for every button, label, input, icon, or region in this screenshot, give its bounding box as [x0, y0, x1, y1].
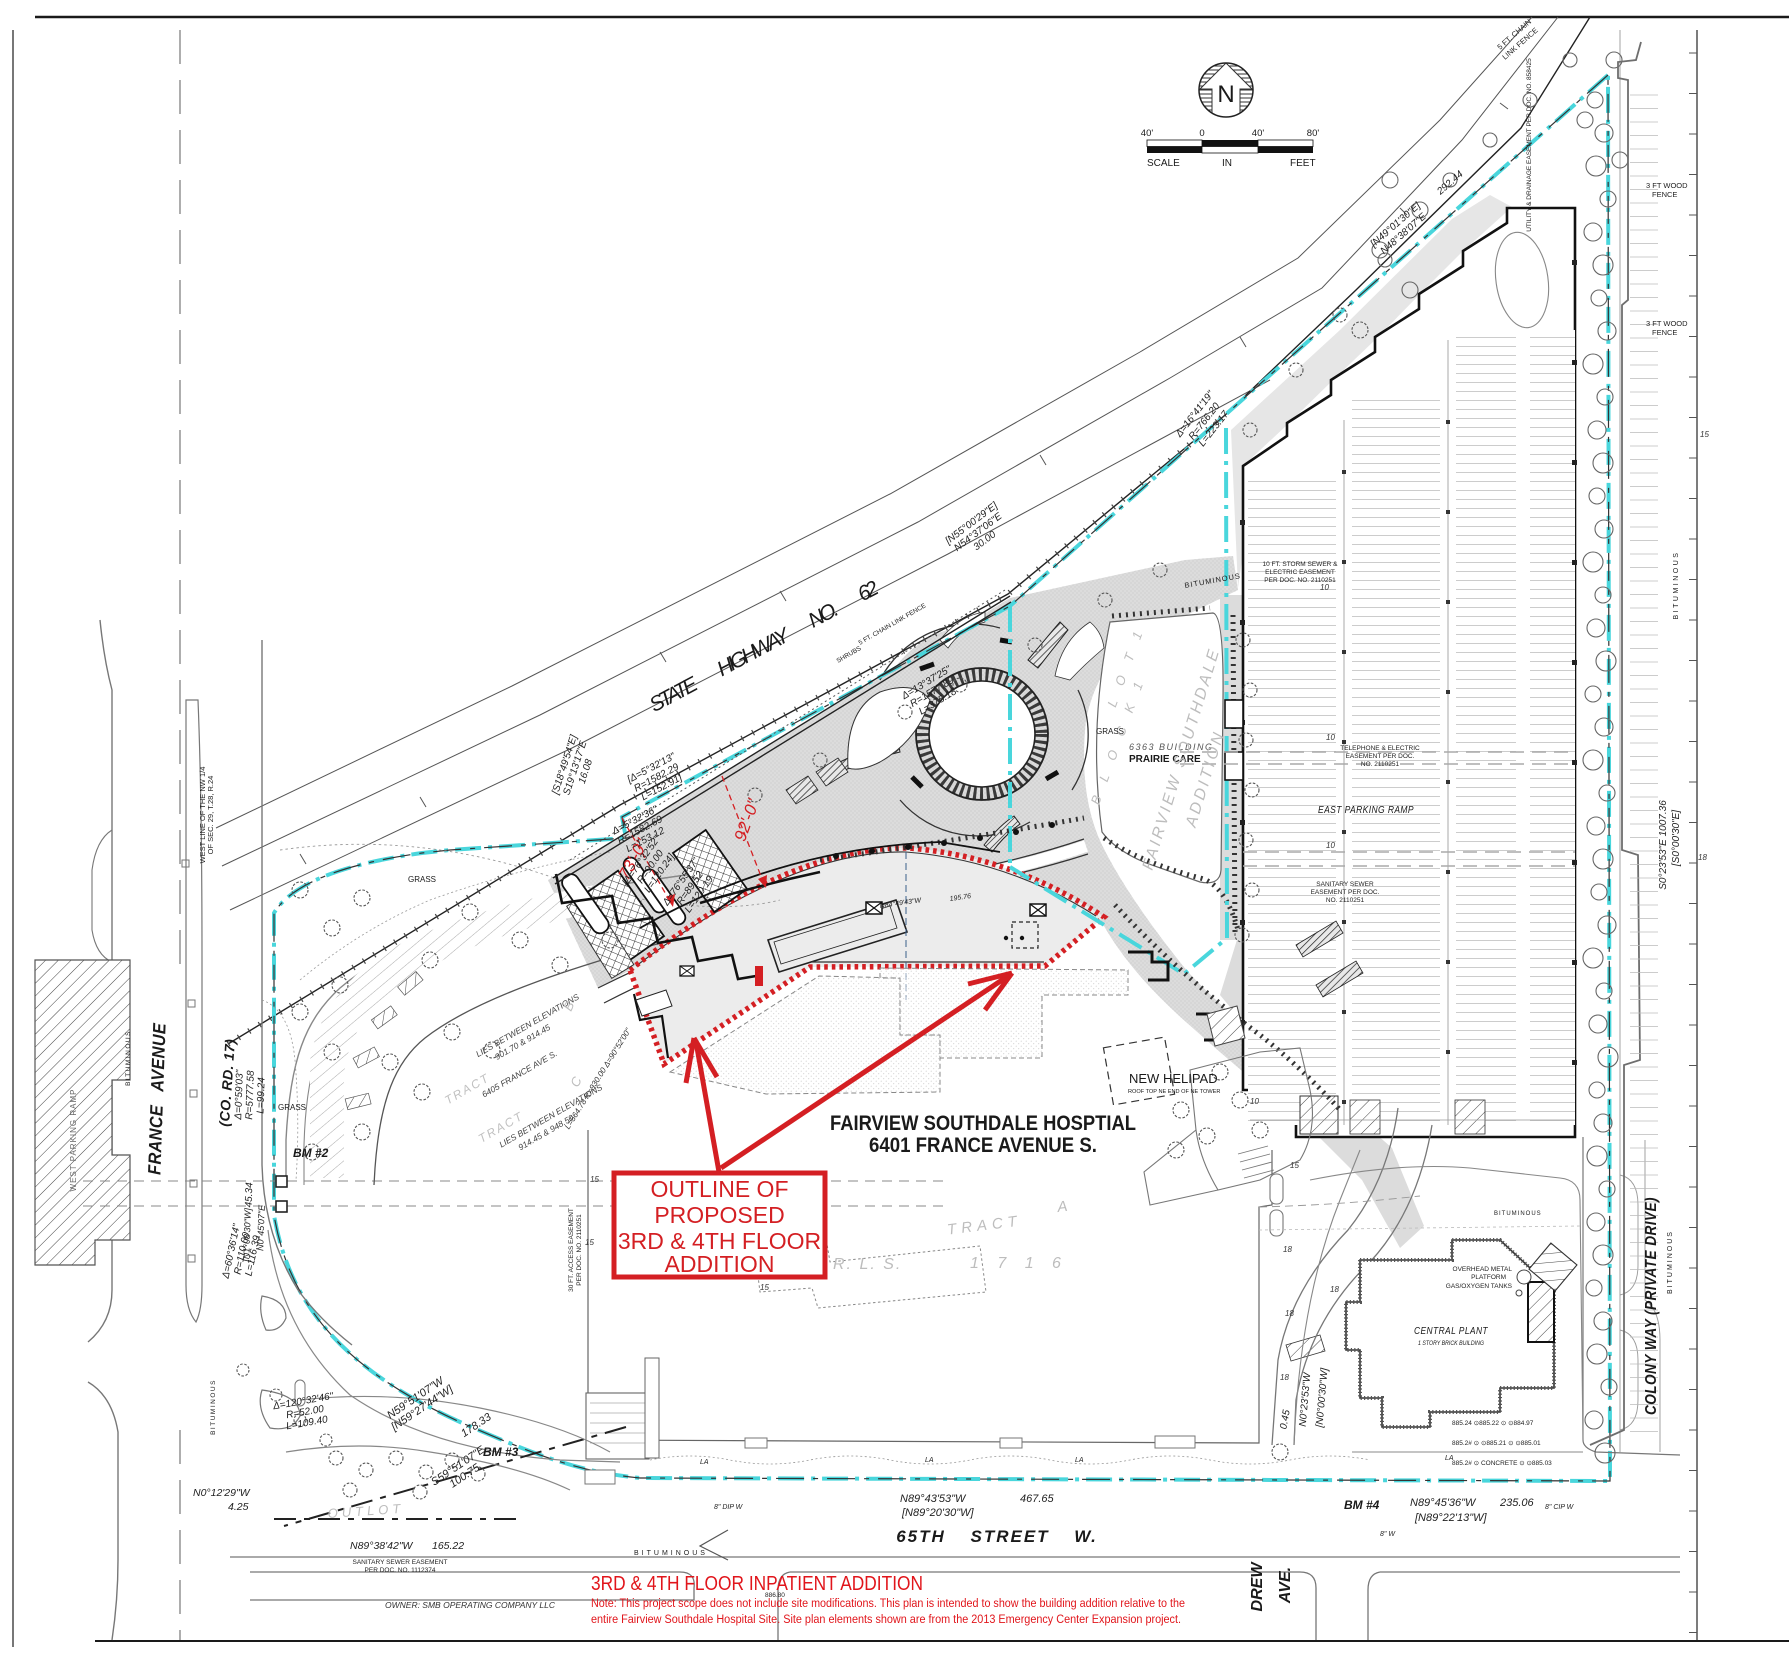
- svg-text:PROPOSED: PROPOSED: [654, 1202, 784, 1228]
- svg-text:8" W: 8" W: [1380, 1531, 1396, 1538]
- svg-text:165.22: 165.22: [432, 1540, 464, 1552]
- svg-text:45.34: 45.34: [244, 1182, 256, 1208]
- svg-text:10: 10: [1326, 733, 1335, 742]
- svg-text:PLATFORM: PLATFORM: [1471, 1274, 1506, 1281]
- svg-text:BM #4: BM #4: [1344, 1498, 1380, 1512]
- svg-text:OWNER: SMB OPERATING COMPAN: OWNER: SMB OPERATING COMPANY LLC: [385, 1600, 556, 1610]
- svg-text:10: 10: [1320, 583, 1329, 592]
- svg-text:885.2# ⊙ ⊙885.21 ⊙ ⊙885: 885.2# ⊙ ⊙885.21 ⊙ ⊙885.01: [1452, 1440, 1541, 1447]
- svg-text:3 FT WOOD: 3 FT WOOD: [1646, 181, 1688, 190]
- svg-text:FEET: FEET: [1290, 158, 1316, 169]
- svg-text:TELEPHONE & ELECTRIC: TELEPHONE & ELECTRIC: [1340, 745, 1420, 752]
- svg-text:BITUMINOUS: BITUMINOUS: [1667, 1230, 1674, 1294]
- svg-text:18: 18: [1285, 1309, 1294, 1318]
- svg-text:[N89°20'30"W]: [N89°20'30"W]: [901, 1507, 974, 1519]
- svg-text:15: 15: [590, 1175, 599, 1184]
- svg-text:FENCE: FENCE: [1652, 190, 1677, 199]
- svg-text:N89°43'53"W: N89°43'53"W: [900, 1493, 967, 1505]
- svg-text:NO. 2110251: NO. 2110251: [1326, 897, 1365, 904]
- svg-text:WEST PARKING RAMP: WEST PARKING RAMP: [69, 1089, 78, 1192]
- svg-text:PER DOC. NO. 1112374: PER DOC. NO. 1112374: [365, 1567, 436, 1574]
- svg-text:8" CIP W: 8" CIP W: [1545, 1504, 1575, 1511]
- svg-text:FAIRVIEW SOUTHDALE HOSPTIAL: FAIRVIEW SOUTHDALE HOSPTIAL: [830, 1111, 1136, 1135]
- svg-text:BITUMINOUS: BITUMINOUS: [1673, 551, 1680, 620]
- svg-text:LA: LA: [700, 1459, 709, 1466]
- svg-text:[N89°22'13"W]: [N89°22'13"W]: [1414, 1512, 1487, 1524]
- svg-text:10: 10: [1326, 841, 1335, 850]
- svg-text:SCALE: SCALE: [1147, 158, 1180, 169]
- svg-text:NO. 2110251: NO. 2110251: [1361, 761, 1400, 768]
- svg-text:65TH STREET W.: 65TH STREET W.: [896, 1527, 1098, 1546]
- svg-text:ELECTRIC EASEMENT: ELECTRIC EASEMENT: [1265, 569, 1335, 576]
- svg-text:N89°38'42"W: N89°38'42"W: [350, 1540, 414, 1552]
- svg-text:10 FT. STORM SEWER &: 10 FT. STORM SEWER &: [1262, 561, 1338, 568]
- svg-text:AVE.: AVE.: [1277, 1567, 1294, 1604]
- svg-text:80': 80': [1307, 128, 1320, 139]
- svg-text:18: 18: [1283, 1245, 1292, 1254]
- svg-text:235.06: 235.06: [1499, 1497, 1535, 1509]
- svg-text:8" DIP W: 8" DIP W: [714, 1504, 744, 1511]
- svg-text:[N1°08'30"W]: [N1°08'30"W]: [241, 1207, 253, 1262]
- svg-text:EASEMENT PER DOC.: EASEMENT PER DOC.: [1346, 753, 1415, 760]
- svg-text:BITUMINOUS: BITUMINOUS: [210, 1379, 217, 1435]
- svg-text:ROOF TOP NE END OF NE TOWER: ROOF TOP NE END OF NE TOWER: [1128, 1089, 1220, 1095]
- svg-text:[S0°00'30"E]: [S0°00'30"E]: [1671, 810, 1682, 867]
- svg-text:DREW: DREW: [1249, 1561, 1266, 1612]
- svg-text:15: 15: [585, 1238, 594, 1247]
- svg-text:18: 18: [1698, 853, 1707, 862]
- svg-text:OVERHEAD METAL: OVERHEAD METAL: [1453, 1266, 1513, 1273]
- svg-text:GRASS: GRASS: [278, 1103, 306, 1112]
- svg-text:EAST PARKING RAMP: EAST PARKING RAMP: [1318, 804, 1414, 816]
- svg-text:Note: This project scope does: Note: This project scope does not includ…: [591, 1596, 1185, 1610]
- svg-text:LA: LA: [1075, 1457, 1084, 1464]
- svg-text:885.24 ⊙885.22 ⊙ ⊙884: 885.24 ⊙885.22 ⊙ ⊙884.97: [1452, 1420, 1534, 1427]
- svg-text:A: A: [1055, 1198, 1068, 1216]
- svg-text:BITUMINOUS: BITUMINOUS: [1494, 1211, 1542, 1217]
- svg-text:N: N: [1217, 81, 1234, 108]
- svg-text:N89°45'36"W: N89°45'36"W: [1410, 1497, 1477, 1509]
- svg-text:FENCE: FENCE: [1652, 328, 1677, 337]
- svg-text:GAS/OXYGEN TANKS: GAS/OXYGEN TANKS: [1446, 1283, 1513, 1290]
- svg-text:15: 15: [1290, 1161, 1299, 1170]
- svg-text:0: 0: [1199, 128, 1204, 139]
- svg-text:18: 18: [1280, 1373, 1289, 1382]
- svg-text:GRASS: GRASS: [1096, 727, 1124, 736]
- svg-text:NEW HELIPAD: NEW HELIPAD: [1129, 1071, 1218, 1086]
- svg-text:L=99.24: L=99.24: [255, 1077, 267, 1114]
- svg-text:40': 40': [1141, 128, 1154, 139]
- svg-text:3 FT WOOD: 3 FT WOOD: [1646, 319, 1688, 328]
- svg-text:BITUMINOUS: BITUMINOUS: [634, 1550, 708, 1557]
- svg-text:N0°45'07"E: N0°45'07"E: [255, 1204, 267, 1251]
- svg-text:OF SEC. 29, T.28, R.24: OF SEC. 29, T.28, R.24: [206, 776, 215, 855]
- svg-text:886.80: 886.80: [765, 1592, 785, 1599]
- svg-text:S0°23'53"E 1007.36: S0°23'53"E 1007.36: [1658, 800, 1669, 890]
- svg-text:BM #3: BM #3: [483, 1445, 519, 1459]
- svg-text:R. L. S.: R. L. S.: [833, 1256, 902, 1273]
- svg-text:LA: LA: [925, 1457, 934, 1464]
- svg-text:entire Fairview Southdale Hosp: entire Fairview Southdale Hospital Site.…: [591, 1612, 1181, 1626]
- svg-text:IN: IN: [1222, 158, 1232, 169]
- svg-text:15: 15: [1700, 430, 1709, 439]
- svg-text:885.2# ⊙ CONCRETE ⊙ ⊙885: 885.2# ⊙ CONCRETE ⊙ ⊙885.03: [1452, 1460, 1552, 1467]
- svg-text:4.25: 4.25: [228, 1501, 249, 1513]
- svg-text:18: 18: [1330, 1285, 1339, 1294]
- svg-text:N0°12'29"W: N0°12'29"W: [193, 1487, 251, 1499]
- svg-text:30 FT. ACCESS EASEMENT: 30 FT. ACCESS EASEMENT: [568, 1208, 575, 1292]
- svg-text:6401 FRANCE AVENUE S.: 6401 FRANCE AVENUE S.: [869, 1133, 1097, 1157]
- svg-text:UTILITY & DRAINAGE EASEMENT PE: UTILITY & DRAINAGE EASEMENT PER DOC. NO.…: [1526, 58, 1533, 232]
- svg-text:40': 40': [1252, 128, 1265, 139]
- svg-text:EASEMENT PER DOC.: EASEMENT PER DOC.: [1311, 889, 1380, 896]
- svg-text:1 STORY BRICK BUILDING: 1 STORY BRICK BUILDING: [1418, 1341, 1484, 1347]
- svg-text:1 7 1 6: 1 7 1 6: [970, 1255, 1068, 1272]
- svg-text:3RD & 4TH FLOOR INPATIENT ADDI: 3RD & 4TH FLOOR INPATIENT ADDITION: [591, 1572, 923, 1595]
- svg-text:COLONY WAY (PRIVATE DRIVE): COLONY WAY (PRIVATE DRIVE): [1643, 1197, 1660, 1415]
- svg-text:BITUMINOUS: BITUMINOUS: [125, 1030, 132, 1086]
- svg-text:15: 15: [760, 1283, 769, 1292]
- svg-text:BM #2: BM #2: [293, 1146, 329, 1160]
- svg-text:PER DOC. NO. 2110251: PER DOC. NO. 2110251: [576, 1214, 583, 1286]
- svg-text:SANITARY SEWER EASEMENT: SANITARY SEWER EASEMENT: [353, 1559, 448, 1566]
- svg-text:OUTLINE OF: OUTLINE OF: [650, 1176, 788, 1202]
- svg-text:SANITARY SEWER: SANITARY SEWER: [1316, 881, 1374, 888]
- svg-text:GRASS: GRASS: [408, 875, 436, 884]
- svg-text:ADDITION: ADDITION: [665, 1251, 775, 1277]
- svg-text:467.65: 467.65: [1020, 1493, 1055, 1505]
- svg-text:CENTRAL PLANT: CENTRAL PLANT: [1414, 1326, 1488, 1337]
- svg-text:6363 BUILDING: 6363 BUILDING: [1129, 742, 1214, 752]
- svg-text:10: 10: [1250, 1097, 1259, 1106]
- svg-text:LA: LA: [1445, 1455, 1454, 1462]
